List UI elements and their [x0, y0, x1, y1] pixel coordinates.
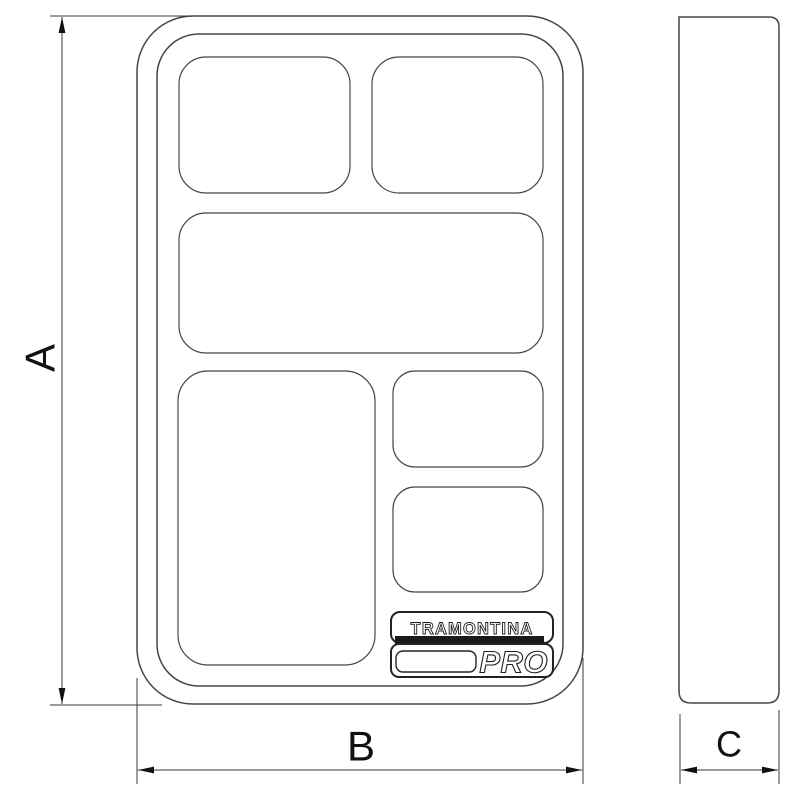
dimension-c-label: C: [716, 724, 742, 765]
compartment-right-upper: [393, 371, 543, 467]
dimension-a: A: [17, 16, 198, 705]
dimension-a-label: A: [17, 344, 64, 372]
dimension-c: C: [680, 710, 779, 784]
dimension-b-arrow-right: [566, 767, 582, 774]
side-view: [679, 17, 779, 703]
side-profile-outline: [679, 17, 779, 703]
logo-badge: TRAMONTINA PRO: [391, 612, 553, 680]
tray-inner-rim: [157, 34, 563, 686]
front-view: TRAMONTINA PRO: [137, 16, 583, 704]
technical-drawing: TRAMONTINA PRO A B C: [0, 0, 800, 800]
compartment-bottom-left: [178, 371, 375, 665]
series-inner-panel: [396, 651, 476, 672]
dimension-c-arrow-left: [681, 767, 697, 774]
dimension-c-arrow-right: [762, 767, 778, 774]
tray-outer-outline: [137, 16, 583, 704]
series-text: PRO: [479, 645, 548, 680]
dimension-a-arrow-top: [59, 17, 66, 33]
brand-text: TRAMONTINA: [411, 620, 534, 638]
dimension-a-arrow-bottom: [59, 688, 66, 704]
compartment-right-lower: [393, 487, 543, 592]
compartment-top-left: [179, 57, 350, 193]
compartment-top-right: [372, 57, 543, 193]
compartment-middle-wide: [179, 213, 543, 353]
dimension-b-arrow-left: [138, 767, 154, 774]
dimension-b-label: B: [347, 723, 375, 770]
